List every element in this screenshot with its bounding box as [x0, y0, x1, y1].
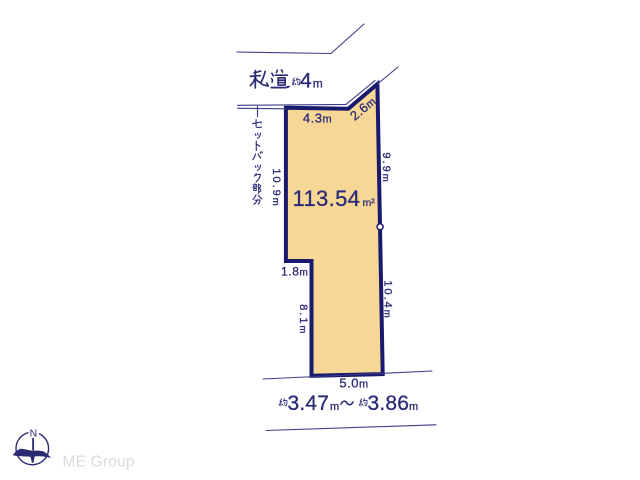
svg-text:N: N: [30, 427, 38, 439]
svg-text:1.8m: 1.8m: [281, 265, 308, 279]
svg-text:10.9m: 10.9m: [270, 168, 282, 207]
svg-text:4.3m: 4.3m: [303, 111, 332, 126]
svg-text:9.9m: 9.9m: [380, 152, 392, 183]
svg-text:ME Group: ME Group: [63, 454, 135, 471]
svg-text:10.4m: 10.4m: [381, 280, 393, 319]
svg-text:5.0m: 5.0m: [339, 376, 368, 391]
svg-text:3.47: 3.47: [288, 392, 330, 415]
svg-text:3.86: 3.86: [368, 392, 410, 415]
svg-text:113.54: 113.54: [293, 186, 361, 211]
svg-text:8.1m: 8.1m: [297, 304, 309, 335]
svg-text:m: m: [330, 401, 339, 413]
svg-text:4m: 4m: [300, 70, 323, 93]
svg-text:m²: m²: [363, 197, 376, 209]
svg-text:m: m: [409, 401, 418, 413]
